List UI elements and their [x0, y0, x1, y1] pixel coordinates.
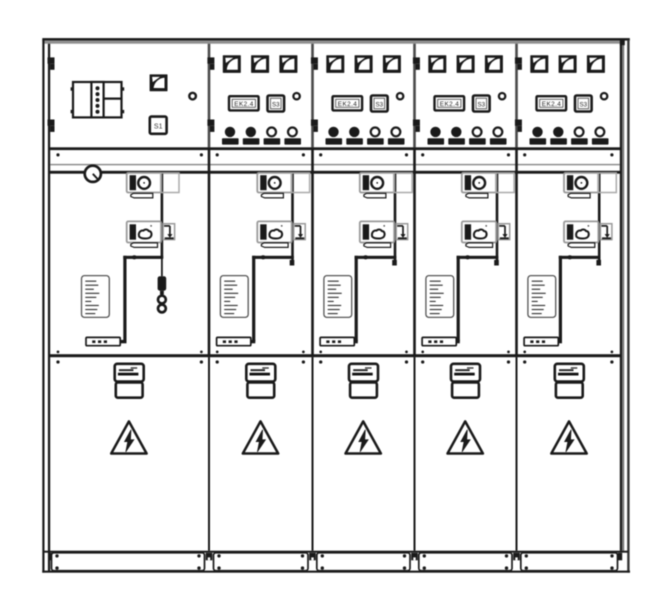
svg-text:S3: S3	[272, 102, 280, 109]
svg-text:S1: S1	[154, 123, 163, 130]
svg-text:EK2.4: EK2.4	[338, 101, 357, 108]
svg-text:S3: S3	[376, 102, 384, 109]
svg-text:EK2.4: EK2.4	[542, 101, 561, 108]
svg-text:EK2.4: EK2.4	[234, 101, 253, 108]
svg-text:EK2.4: EK2.4	[440, 101, 459, 108]
svg-text:S3: S3	[478, 102, 486, 109]
svg-text:S3: S3	[580, 102, 588, 109]
